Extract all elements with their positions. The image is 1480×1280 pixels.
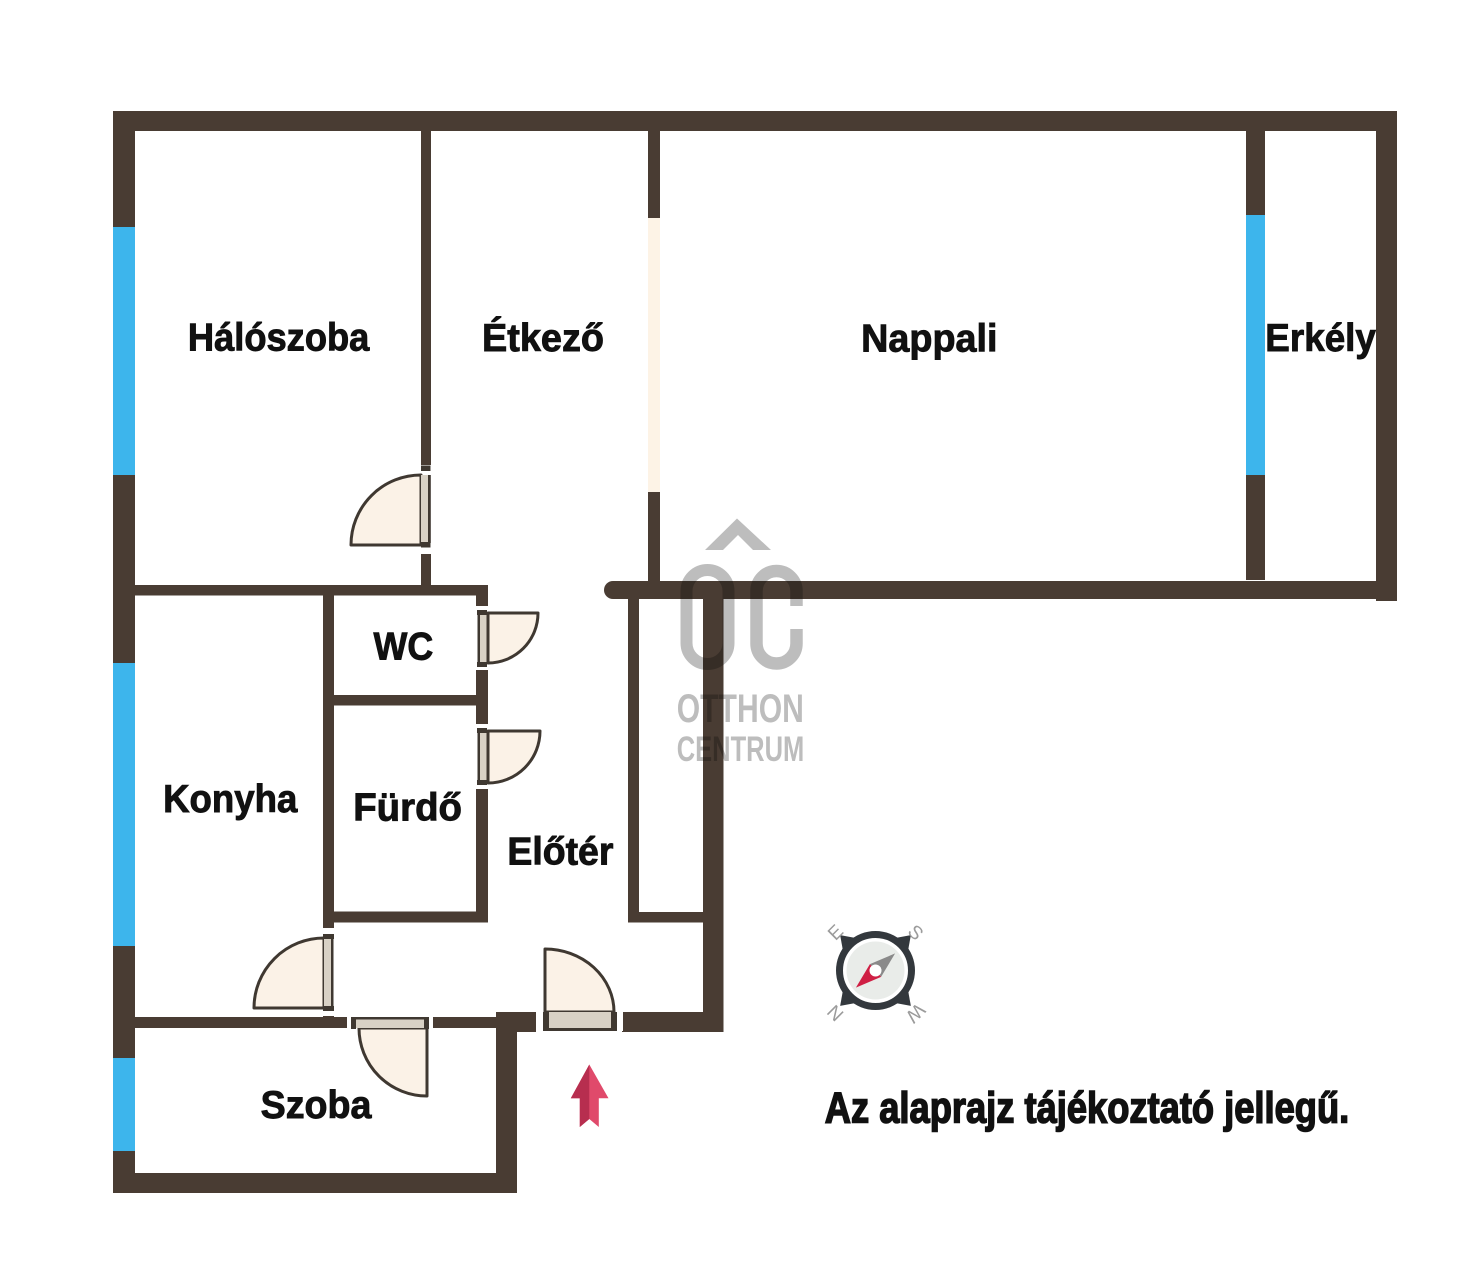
svg-text:Hálószoba: Hálószoba	[188, 315, 370, 358]
svg-text:Nappali: Nappali	[861, 317, 997, 361]
svg-text:Az alaprajz tájékoztató jelleg: Az alaprajz tájékoztató jellegű.	[825, 1082, 1349, 1132]
svg-text:Előtér: Előtér	[507, 830, 613, 874]
svg-text:Szoba: Szoba	[261, 1083, 372, 1127]
svg-text:OTTHON: OTTHON	[677, 686, 804, 731]
svg-text:Étkező: Étkező	[482, 315, 604, 360]
svg-text:CENTRUM: CENTRUM	[677, 730, 805, 769]
svg-text:Fürdő: Fürdő	[353, 786, 462, 829]
svg-text:WC: WC	[374, 624, 434, 668]
svg-text:Erkély: Erkély	[1265, 317, 1376, 360]
svg-text:Konyha: Konyha	[163, 778, 298, 821]
